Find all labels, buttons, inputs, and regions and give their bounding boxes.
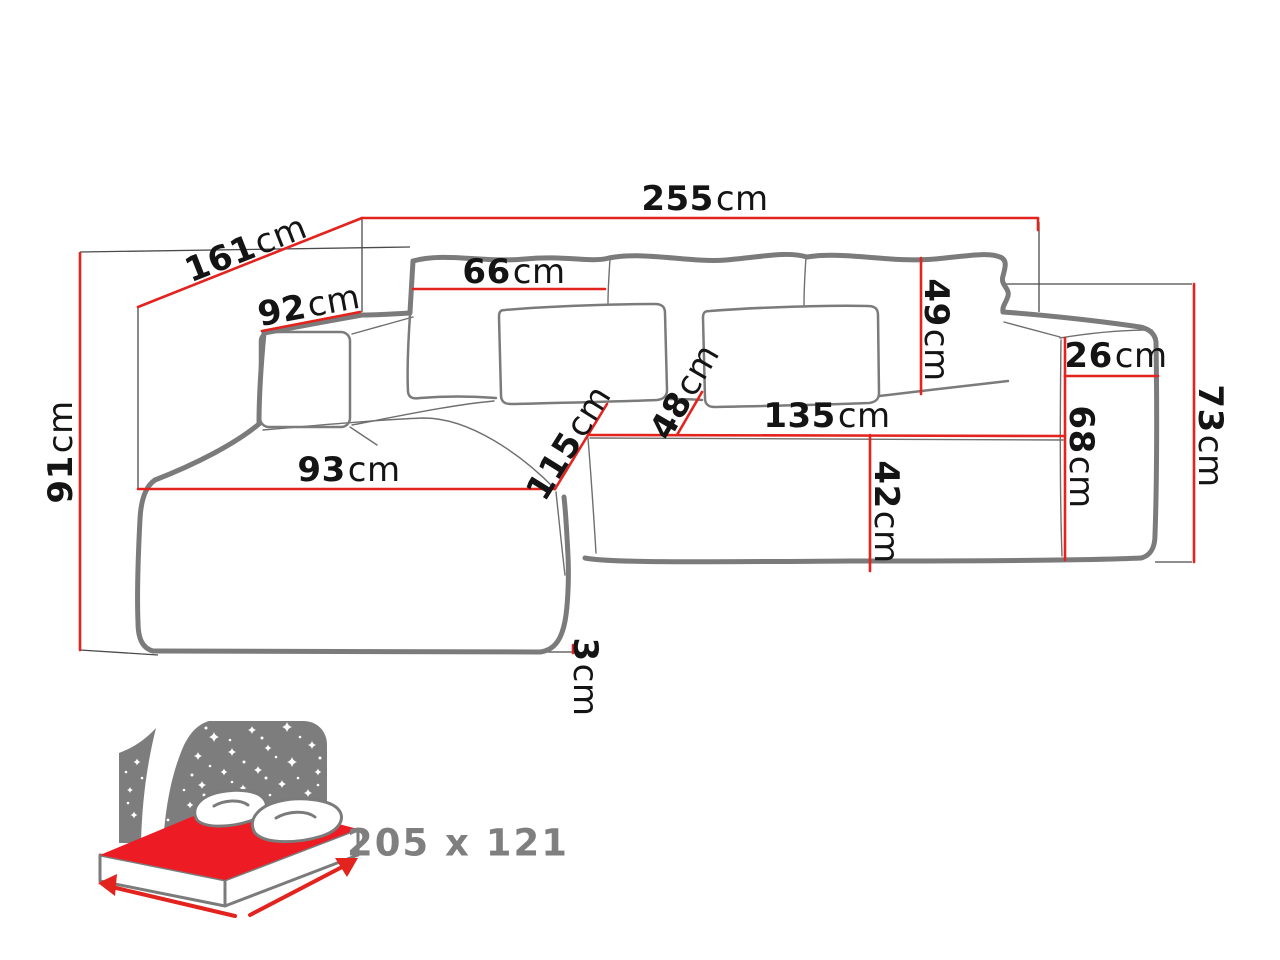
dimension-label-42: 42cm: [869, 460, 903, 563]
diagram-canvas: 255cm 161cm 92cm 66cm 91cm 93cm 115cm 48…: [0, 0, 1280, 960]
dimension-label-91: 91cm: [44, 400, 78, 503]
sleeping-area-size: 205 x 121: [347, 822, 569, 865]
headboard-sliver: [119, 728, 156, 843]
dimension-label-68: 68cm: [1064, 405, 1098, 508]
dimension-label-73: 73cm: [1193, 384, 1227, 487]
dimension-label-66: 66cm: [462, 255, 565, 289]
dimension-label-3: 3cm: [568, 638, 602, 717]
dimension-label-49: 49cm: [919, 278, 953, 381]
dimension-label-135: 135cm: [763, 399, 890, 433]
dimension-label-26: 26cm: [1064, 339, 1167, 373]
dimension-label-93: 93cm: [297, 453, 400, 487]
dimension-label-255: 255cm: [641, 182, 768, 216]
sleeping-function-icon: [98, 721, 358, 916]
